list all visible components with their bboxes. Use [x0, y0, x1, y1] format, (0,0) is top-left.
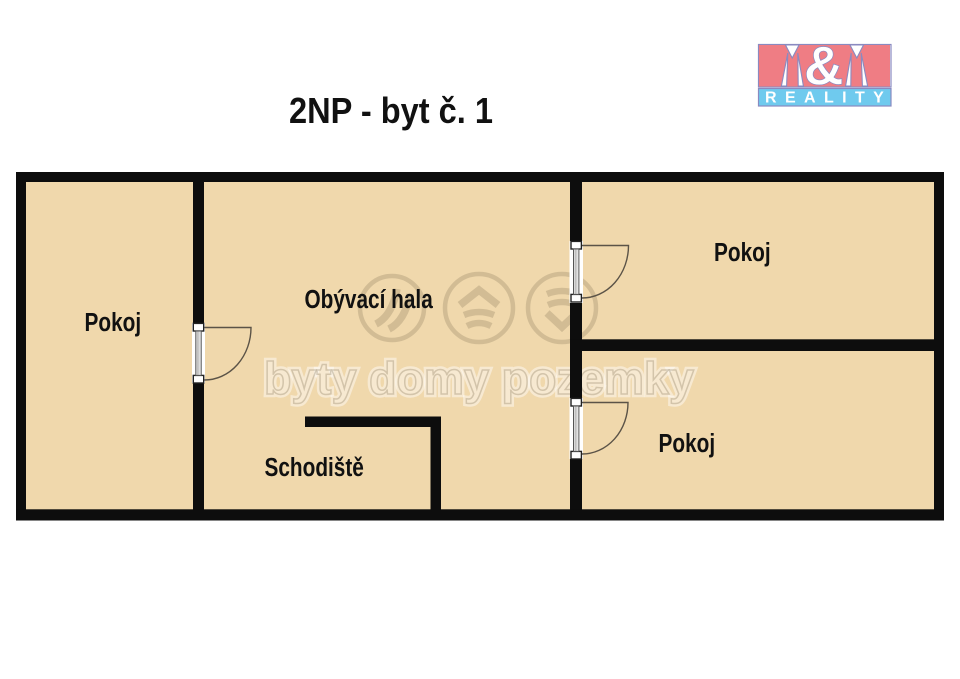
svg-text:2NP - byt č. 1: 2NP - byt č. 1	[289, 92, 493, 132]
svg-text:Pokoj: Pokoj	[85, 308, 142, 337]
svg-text:&: &	[804, 35, 844, 97]
svg-text:Pokoj: Pokoj	[714, 238, 771, 267]
svg-text:Schodiště: Schodiště	[265, 453, 364, 482]
svg-text:byty domy pozemky: byty domy pozemky	[264, 353, 694, 404]
svg-text:Obývací hala: Obývací hala	[305, 285, 434, 314]
svg-text:REALITY: REALITY	[765, 90, 892, 107]
svg-text:Pokoj: Pokoj	[659, 429, 716, 458]
